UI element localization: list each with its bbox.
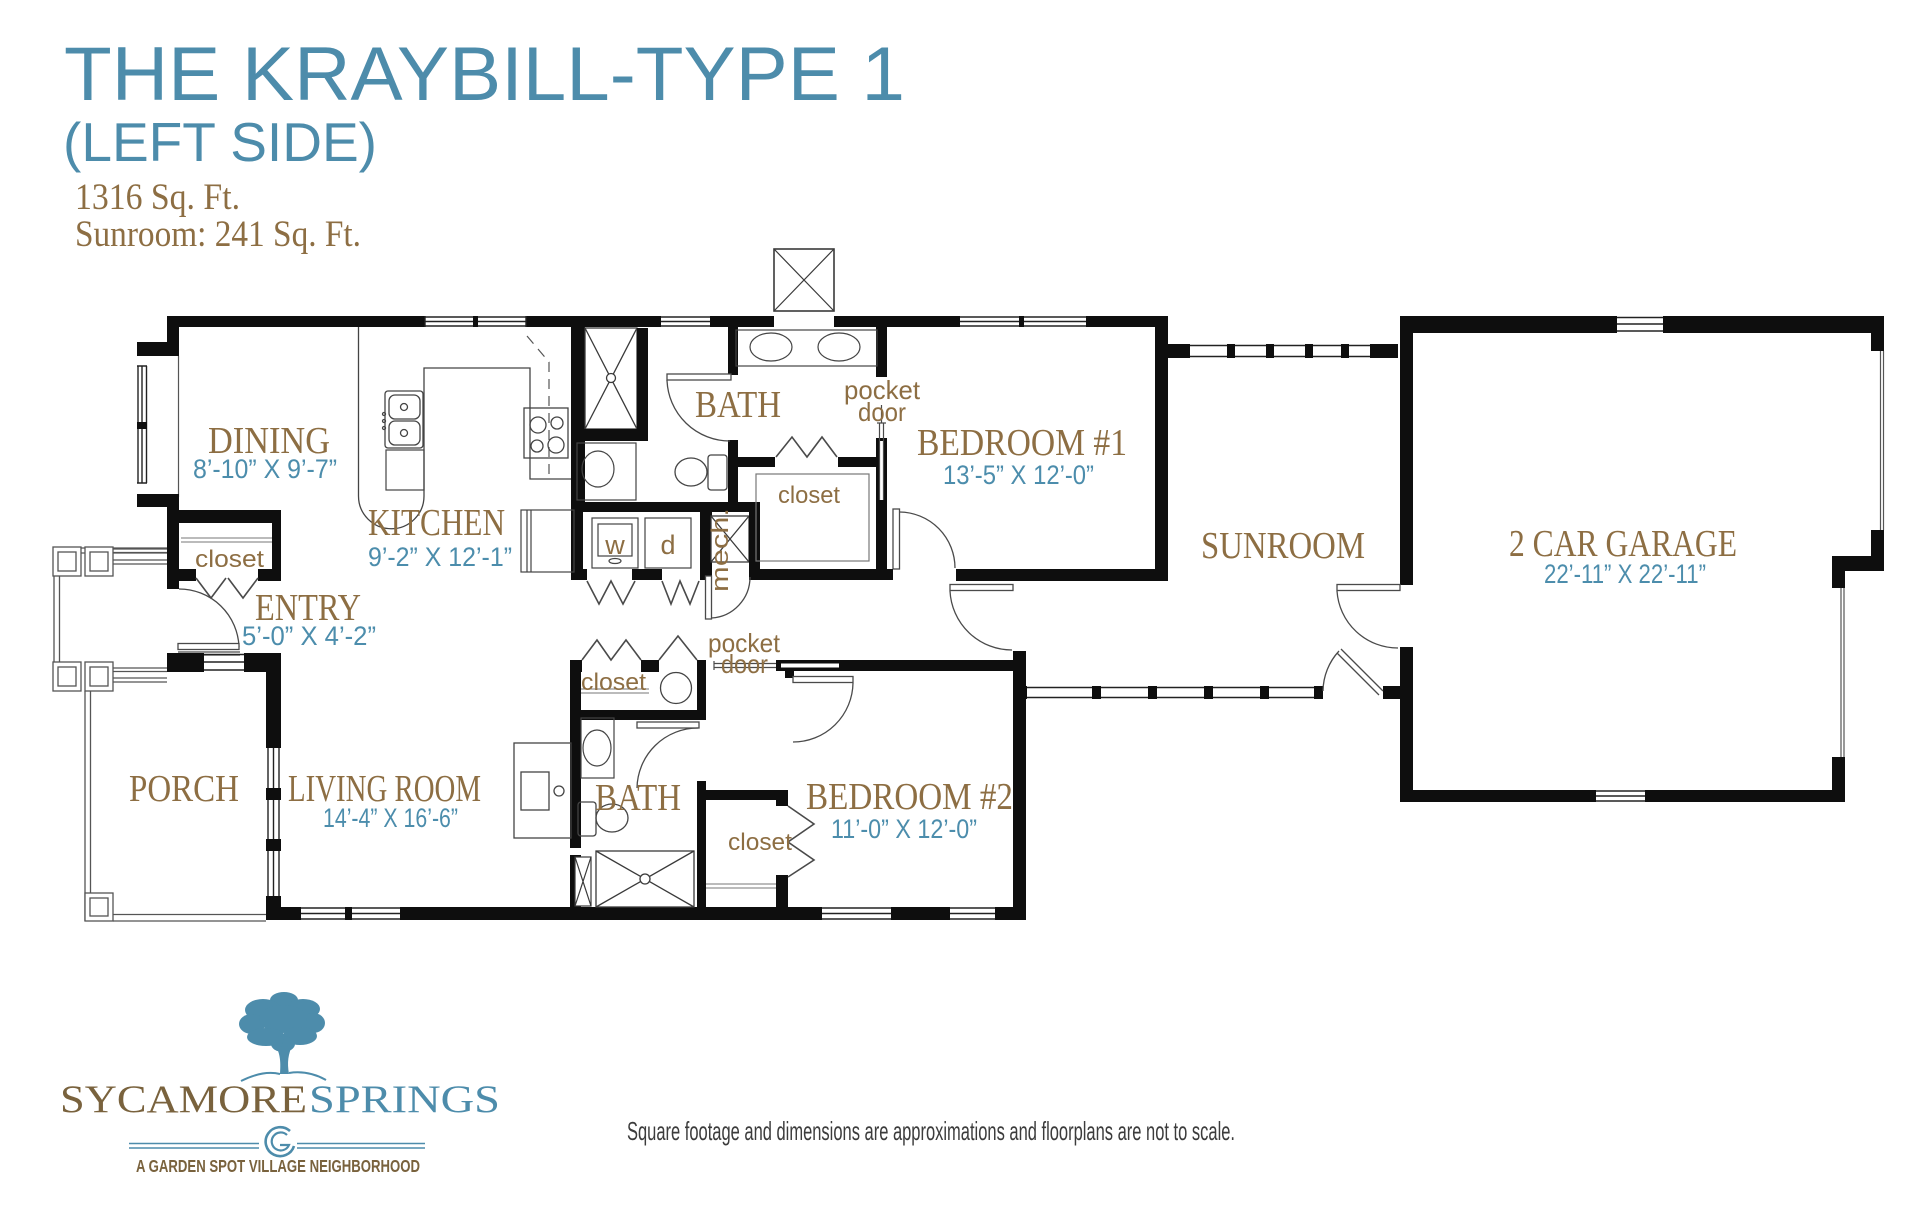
svg-text:KITCHEN: KITCHEN bbox=[368, 502, 505, 544]
svg-text:door: door bbox=[858, 397, 906, 427]
svg-text:5’-0” X 4’-2”: 5’-0” X 4’-2” bbox=[242, 621, 376, 651]
svg-text:BEDROOM #2: BEDROOM #2 bbox=[806, 776, 1013, 818]
svg-text:PORCH: PORCH bbox=[129, 768, 239, 810]
svg-text:22’-11” X 22’-11”: 22’-11” X 22’-11” bbox=[1544, 559, 1706, 589]
svg-text:Sunroom: 241 Sq. Ft.: Sunroom: 241 Sq. Ft. bbox=[75, 214, 361, 255]
svg-text:BEDROOM #1: BEDROOM #1 bbox=[917, 422, 1127, 464]
svg-text:closet: closet bbox=[195, 546, 264, 573]
svg-text:A GARDEN SPOT VILLAGE NEIGHBOR: A GARDEN SPOT VILLAGE NEIGHBORHOOD bbox=[136, 1156, 420, 1176]
svg-text:1316 Sq. Ft.: 1316 Sq. Ft. bbox=[75, 177, 240, 218]
svg-text:closet: closet bbox=[778, 482, 840, 509]
svg-text:8’-10” X 9’-7”: 8’-10” X 9’-7” bbox=[193, 454, 337, 484]
svg-text:13’-5” X 12’-0”: 13’-5” X 12’-0” bbox=[943, 460, 1094, 490]
svg-text:door: door bbox=[721, 649, 768, 679]
svg-text:11’-0” X 12’-0”: 11’-0” X 12’-0” bbox=[831, 814, 977, 844]
svg-text:SYCAMORE: SYCAMORE bbox=[60, 1078, 307, 1121]
svg-text:mech.: mech. bbox=[707, 508, 734, 592]
svg-text:BATH: BATH bbox=[595, 777, 681, 819]
svg-text:(LEFT SIDE): (LEFT SIDE) bbox=[63, 111, 377, 173]
svg-text:THE KRAYBILL-TYPE 1: THE KRAYBILL-TYPE 1 bbox=[64, 32, 905, 117]
svg-text:Square footage and dimensions: Square footage and dimensions are approx… bbox=[627, 1116, 1235, 1146]
svg-text:closet: closet bbox=[728, 829, 792, 856]
svg-text:14’-4” X 16’-6”: 14’-4” X 16’-6” bbox=[323, 803, 458, 833]
svg-text:d: d bbox=[660, 530, 675, 560]
svg-text:SPRINGS: SPRINGS bbox=[309, 1078, 500, 1121]
svg-text:w: w bbox=[604, 530, 625, 560]
svg-text:BATH: BATH bbox=[695, 384, 781, 426]
svg-text:9’-2” X 12’-1”: 9’-2” X 12’-1” bbox=[368, 542, 512, 572]
svg-text:SUNROOM: SUNROOM bbox=[1201, 525, 1365, 567]
svg-text:closet: closet bbox=[581, 669, 646, 696]
